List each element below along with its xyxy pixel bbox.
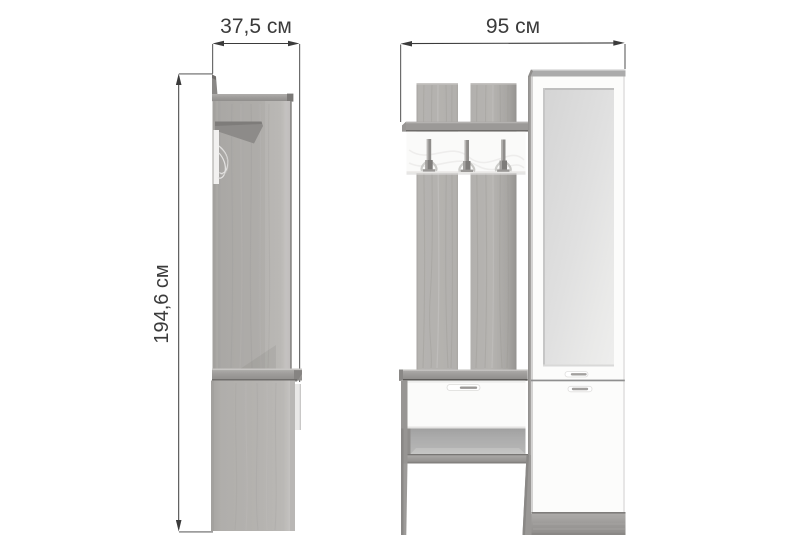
svg-text:95 см: 95 см: [486, 15, 540, 38]
svg-text:194,6 см: 194,6 см: [151, 264, 173, 343]
svg-text:37,5 см: 37,5 см: [220, 15, 292, 38]
